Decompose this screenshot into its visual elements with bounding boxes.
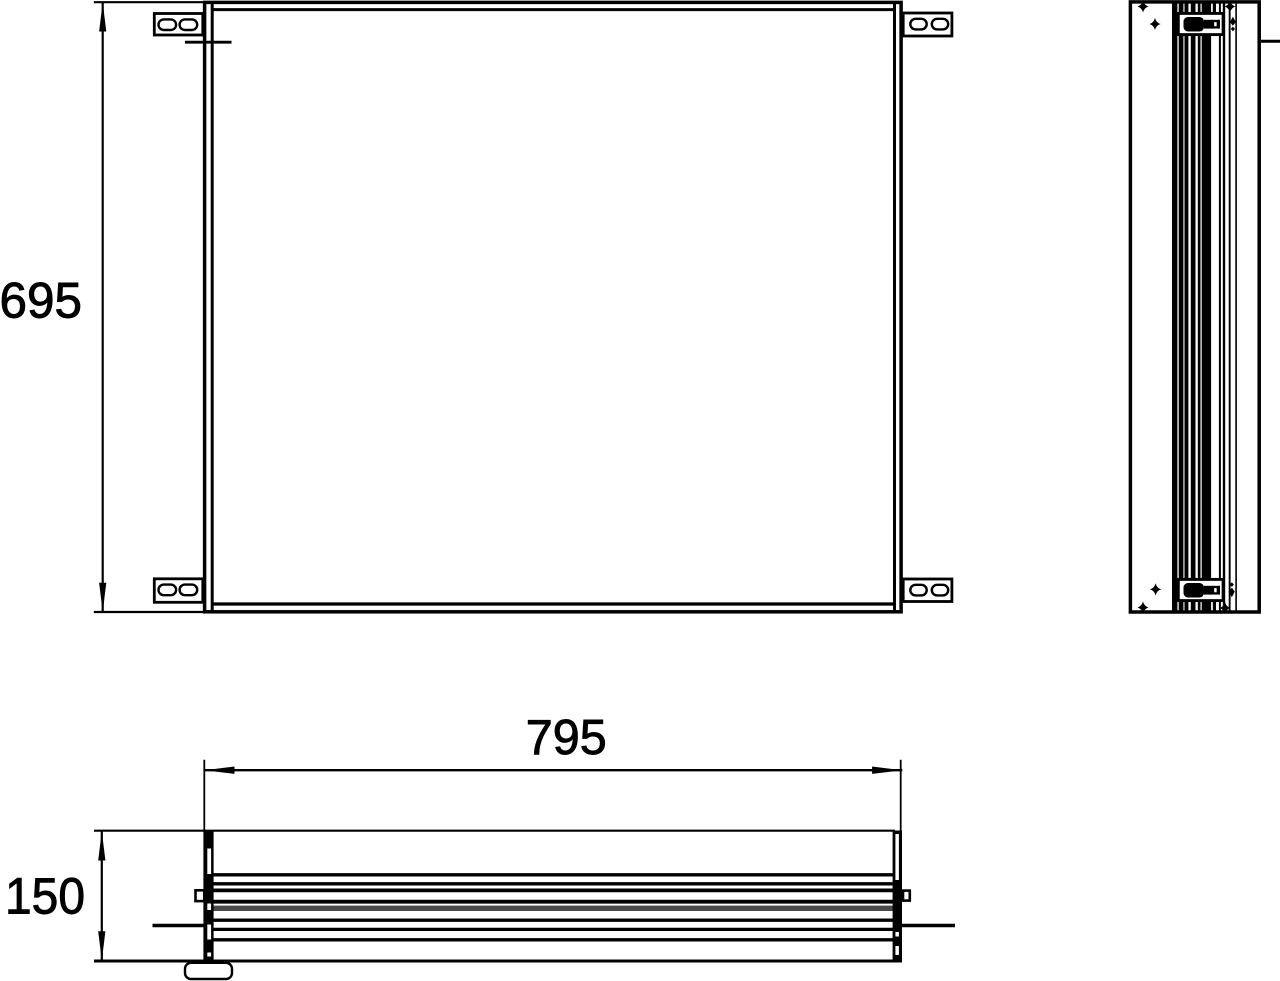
svg-text:795: 795 bbox=[526, 710, 607, 765]
svg-text:695: 695 bbox=[0, 272, 82, 328]
svg-text:150: 150 bbox=[5, 867, 85, 924]
